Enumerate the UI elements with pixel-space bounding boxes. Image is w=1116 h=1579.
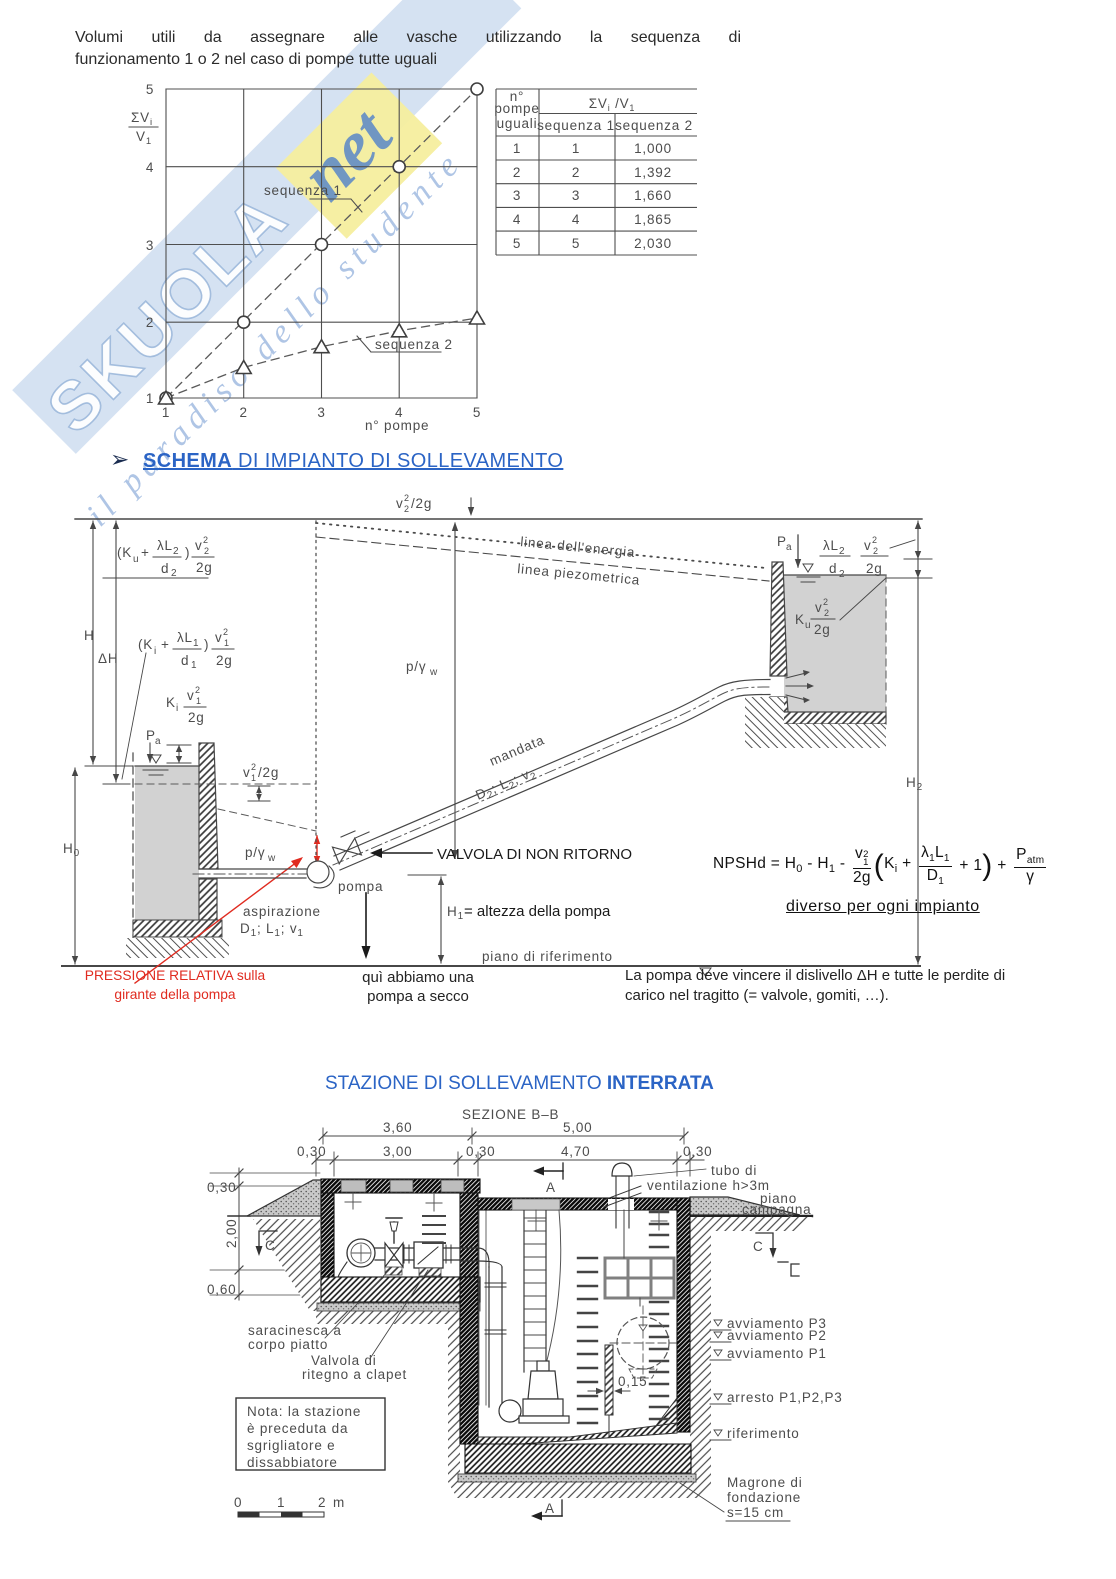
svg-text:ΔH: ΔH [98,651,118,666]
svg-text:2: 2 [251,762,257,772]
svg-text:d: d [181,653,189,668]
svg-text:2g: 2g [814,622,831,637]
svg-text:2: 2 [872,535,878,545]
svg-text:1: 1 [191,660,197,671]
svg-text:p/γ: p/γ [245,845,265,860]
svg-text:0,15: 0,15 [618,1374,647,1389]
svg-text:pompa: pompa [338,879,383,894]
svg-text:saracinesca a: saracinesca a [248,1323,342,1338]
svg-text:2: 2 [572,165,580,180]
svg-text:5: 5 [473,405,481,420]
svg-text:pompe: pompe [494,101,539,116]
svg-text:3: 3 [317,405,325,420]
svg-text:tubo di: tubo di [711,1163,757,1178]
svg-text:1,000: 1,000 [634,141,672,156]
svg-text:): ) [204,637,209,652]
svg-text:v: v [187,688,195,703]
svg-text:H1: H1 [447,904,464,922]
svg-text:1: 1 [162,405,170,420]
svg-text:1,865: 1,865 [634,212,672,227]
svg-text:2: 2 [839,546,845,557]
svg-text:λL: λL [177,630,193,645]
svg-text:2: 2 [318,1495,326,1510]
svg-text:1: 1 [572,141,580,156]
svg-text:1,392: 1,392 [634,165,672,180]
svg-text:ΣVi /V1: ΣVi /V1 [589,96,635,113]
svg-text:1: 1 [277,1495,285,1510]
svg-text:2g: 2g [188,710,205,725]
svg-text:1: 1 [513,141,521,156]
svg-text:m: m [333,1495,345,1510]
svg-text:1: 1 [224,638,230,648]
svg-text:+: + [161,637,170,652]
svg-text:2,030: 2,030 [634,236,672,251]
svg-text:C: C [265,1238,276,1253]
svg-text:4: 4 [513,212,521,227]
svg-text:(K: (K [117,545,132,560]
svg-text:avviamento P2: avviamento P2 [727,1328,827,1343]
svg-text:sequenza 2: sequenza 2 [615,118,693,133]
svg-text:i: i [176,703,179,714]
svg-text:4: 4 [572,212,580,227]
svg-text:2: 2 [824,608,830,618]
svg-text:v: v [243,765,251,780]
svg-text:u: u [133,554,139,565]
svg-text:SEZIONE B–B: SEZIONE B–B [462,1107,559,1122]
svg-text:D1; L1; v1: D1; L1; v1 [240,921,304,939]
svg-text:v: v [864,538,872,553]
svg-text:2: 2 [203,535,209,545]
svg-text:ritegno a clapet: ritegno a clapet [302,1367,407,1382]
svg-text:0,60: 0,60 [207,1282,236,1297]
svg-text:0: 0 [234,1495,242,1510]
svg-text:Magrone di: Magrone di [727,1475,803,1490]
svg-text:Nota: la stazione: Nota: la stazione [247,1404,361,1419]
svg-text:3,00: 3,00 [383,1144,412,1159]
svg-text:riferimento: riferimento [727,1426,800,1441]
svg-text:2: 2 [146,315,154,330]
svg-text:aspirazione: aspirazione [243,904,321,919]
svg-text:(K: (K [138,637,153,652]
svg-text:linea dell'energia: linea dell'energia [520,534,636,560]
svg-text:2: 2 [195,685,201,695]
svg-text:u: u [805,620,811,631]
svg-text:2: 2 [823,597,829,607]
svg-text:5: 5 [146,82,154,97]
svg-text:3: 3 [572,188,580,203]
svg-text:2g: 2g [866,561,883,576]
svg-text:w: w [429,667,438,678]
svg-text:v: v [195,538,203,553]
svg-text:ΣVi: ΣVi [131,110,153,128]
svg-text:p/γ: p/γ [406,659,426,674]
svg-text:dissabbiatore: dissabbiatore [247,1455,338,1470]
svg-text:λL: λL [823,538,839,553]
svg-text:2: 2 [240,405,248,420]
svg-text:2: 2 [171,568,177,579]
svg-text:2: 2 [513,165,521,180]
svg-text:campagna: campagna [742,1202,811,1217]
svg-text:a: a [155,736,161,747]
svg-text:sequenza 2: sequenza 2 [375,337,453,352]
svg-text:5,00: 5,00 [563,1120,592,1135]
svg-text:n° pompe: n° pompe [365,418,429,433]
svg-text:1: 1 [196,696,202,706]
svg-text:avviamento P1: avviamento P1 [727,1346,827,1361]
svg-text:1: 1 [251,773,257,783]
svg-text:w: w [267,853,276,864]
svg-text:λL: λL [157,538,173,553]
svg-text:s=15 cm: s=15 cm [727,1505,784,1520]
svg-text:uguali: uguali [497,116,538,131]
svg-text:linea piezometrica: linea piezometrica [517,561,641,588]
svg-text:/2g: /2g [411,496,432,511]
svg-text:2: 2 [839,569,845,580]
svg-text:arresto P1,P2,P3: arresto P1,P2,P3 [727,1390,843,1405]
svg-text:v: v [815,600,823,615]
svg-text:5: 5 [513,236,521,251]
svg-text:H: H [84,628,95,643]
svg-text:4,70: 4,70 [561,1144,590,1159]
svg-text:2: 2 [223,627,229,637]
svg-text:K: K [166,695,176,710]
svg-text:Valvola di: Valvola di [311,1353,377,1368]
svg-text:H0: H0 [63,841,80,859]
svg-text:d: d [161,561,169,576]
svg-text:K: K [795,612,805,627]
svg-text:0,30: 0,30 [466,1144,495,1159]
svg-text:2: 2 [404,493,410,503]
svg-text:i: i [154,646,157,657]
svg-text:è preceduta da: è preceduta da [247,1421,348,1436]
svg-text:V1: V1 [136,129,152,147]
svg-text:0,30: 0,30 [683,1144,712,1159]
svg-text:sequenza 1: sequenza 1 [264,183,342,198]
svg-text:2: 2 [204,546,210,556]
svg-text:= altezza della pompa: = altezza della pompa [464,903,611,920]
svg-text:fondazione: fondazione [727,1490,801,1505]
svg-text:VALVOLA DI NON RITORNO: VALVOLA DI NON RITORNO [437,846,632,863]
svg-text:piano di riferimento: piano di riferimento [482,949,613,964]
svg-text:ventilazione h>3m: ventilazione h>3m [647,1178,770,1193]
svg-text:2: 2 [873,546,879,556]
svg-text:+: + [141,545,150,560]
svg-text:A: A [546,1180,556,1195]
svg-text:v: v [396,496,404,511]
svg-text:1: 1 [146,391,154,406]
svg-text:A: A [545,1501,555,1516]
svg-text:sequenza 1: sequenza 1 [537,118,615,133]
svg-text:): ) [185,545,190,560]
svg-text:4: 4 [146,160,154,175]
svg-text:2: 2 [173,546,179,557]
svg-text:sgrigliatore e: sgrigliatore e [247,1438,336,1453]
svg-text:0,30: 0,30 [207,1180,236,1195]
svg-text:2g: 2g [196,560,213,575]
svg-text:H2: H2 [906,775,923,793]
svg-text:1,660: 1,660 [634,188,672,203]
svg-text:3: 3 [513,188,521,203]
svg-text:/2g: /2g [258,765,279,780]
svg-text:2g: 2g [216,653,233,668]
svg-text:2,00: 2,00 [224,1219,239,1248]
svg-text:corpo piatto: corpo piatto [248,1337,328,1352]
svg-text:1: 1 [193,638,199,649]
svg-text:d: d [829,561,837,576]
svg-text:5: 5 [572,236,580,251]
svg-text:C: C [753,1239,764,1254]
svg-text:3,60: 3,60 [383,1120,412,1135]
svg-text:3: 3 [146,238,154,253]
svg-text:mandata: mandata [487,732,546,769]
svg-text:a: a [786,542,792,553]
svg-text:2: 2 [404,504,410,514]
svg-text:v: v [215,630,223,645]
svg-text:0,30: 0,30 [297,1144,326,1159]
